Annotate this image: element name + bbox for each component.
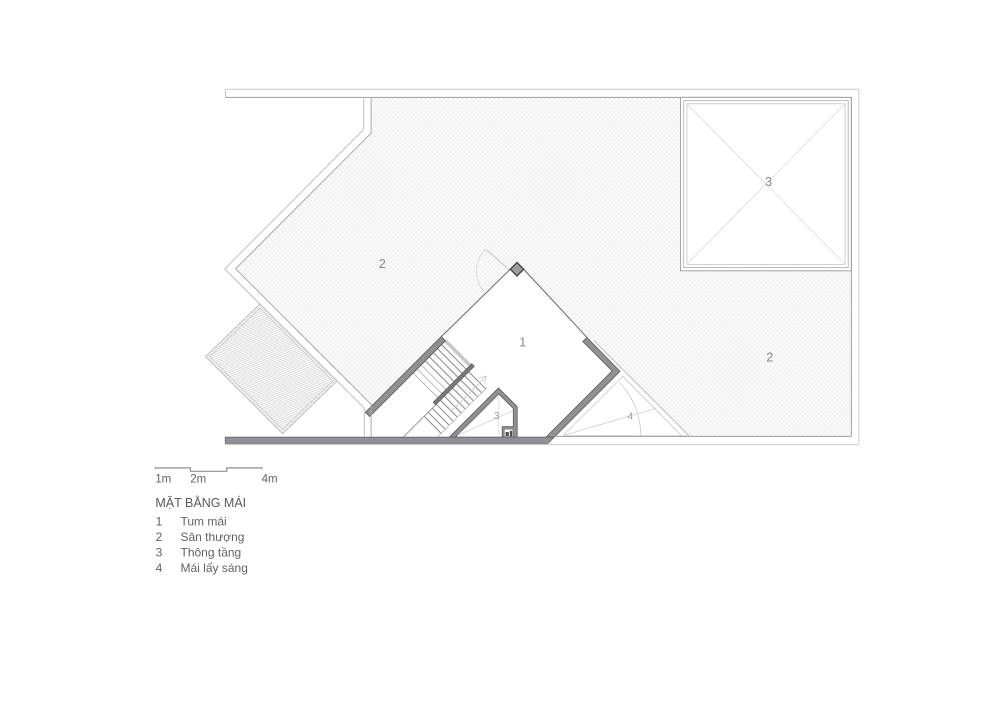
svg-text:4: 4 xyxy=(628,411,634,422)
svg-text:MẶT BẰNG MÁI: MẶT BẰNG MÁI xyxy=(155,495,246,510)
svg-text:Tum mái: Tum mái xyxy=(181,515,227,529)
svg-text:3: 3 xyxy=(494,411,500,422)
svg-text:Mái lấy sáng: Mái lấy sáng xyxy=(181,561,248,575)
svg-text:4: 4 xyxy=(156,561,163,575)
svg-text:2m: 2m xyxy=(190,474,206,486)
svg-text:Thông tầng: Thông tầng xyxy=(181,546,242,560)
svg-text:2: 2 xyxy=(379,257,386,271)
svg-text:1: 1 xyxy=(156,515,163,529)
svg-text:4m: 4m xyxy=(262,474,278,486)
svg-text:2: 2 xyxy=(156,530,163,544)
svg-text:2: 2 xyxy=(766,351,773,365)
svg-text:3: 3 xyxy=(765,175,772,189)
svg-text:3: 3 xyxy=(156,546,163,560)
svg-text:1: 1 xyxy=(519,336,526,350)
svg-text:1m: 1m xyxy=(155,474,171,486)
svg-text:Sân thượng: Sân thượng xyxy=(181,530,245,544)
